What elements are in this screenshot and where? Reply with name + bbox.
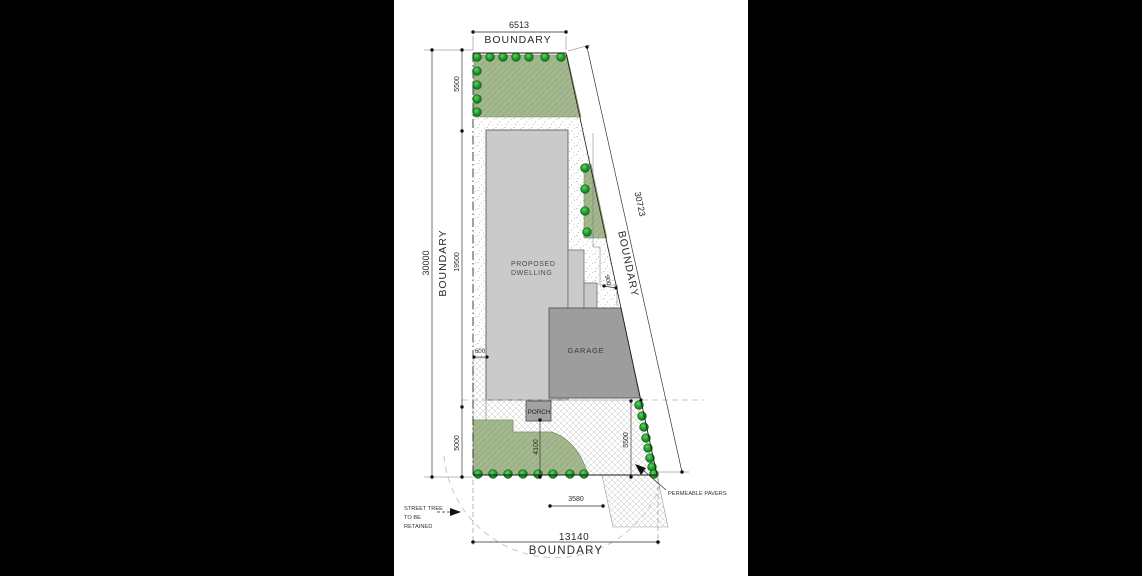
front-boundary-label: BOUNDARY xyxy=(529,545,604,557)
left-boundary-label: BOUNDARY xyxy=(437,229,449,296)
street-tree-note-line2: TO BE xyxy=(404,515,421,521)
street-tree-note-line1: STREET TREE xyxy=(404,506,443,512)
garage-side-dimension: 5500 xyxy=(623,432,630,448)
dwelling-label-line1: PROPOSED xyxy=(511,261,555,268)
top-boundary-label: BOUNDARY xyxy=(484,34,551,46)
screenshot-stage: 6513 BOUNDARY 30000 BOUNDARY 30723 BOUND… xyxy=(0,0,1142,576)
dwelling-length-dimension: 19500 xyxy=(454,252,461,272)
garage-label: GARAGE xyxy=(568,346,605,355)
porch-label: PORCH xyxy=(528,409,551,416)
crossover-width-dimension: 3580 xyxy=(568,496,584,503)
front-boundary-dimension: 13140 xyxy=(559,532,589,543)
porch-front-dimension: 4100 xyxy=(533,439,540,455)
top-boundary-dimension: 6513 xyxy=(509,20,529,30)
left-boundary-dimension: 30000 xyxy=(421,250,431,275)
front-setback-dimension: 5000 xyxy=(454,435,461,451)
permeable-pavers-label: PERMEABLE PAVERS xyxy=(668,491,727,497)
side-setback-dimension: 600 xyxy=(475,348,486,355)
rear-setback-dimension: 5500 xyxy=(454,76,461,92)
side-path-hatch xyxy=(473,358,486,420)
site-plan-drawing: 6513 BOUNDARY 30000 BOUNDARY 30723 BOUND… xyxy=(0,0,1142,576)
dwelling-label-line2: DWELLING xyxy=(511,270,552,277)
street-tree-note-line3: RETAINED xyxy=(404,524,432,530)
